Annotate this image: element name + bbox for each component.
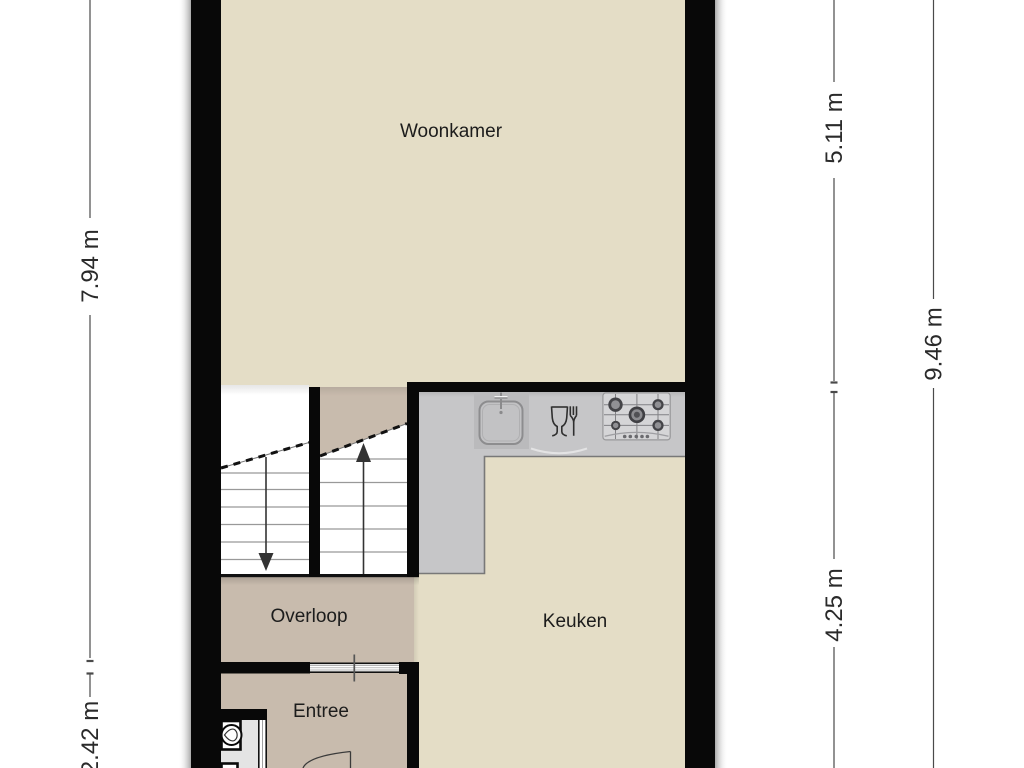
svg-text:9.46 m: 9.46 m [921, 307, 948, 380]
svg-text:2.42 m: 2.42 m [77, 701, 104, 768]
svg-text:Entree: Entree [293, 701, 349, 722]
svg-text:5.11 m: 5.11 m [821, 92, 848, 164]
svg-text:Woonkamer: Woonkamer [400, 121, 503, 142]
svg-text:4.25 m: 4.25 m [821, 568, 848, 641]
svg-text:Keuken: Keuken [543, 611, 607, 632]
svg-text:Overloop: Overloop [270, 606, 347, 627]
svg-text:7.94 m: 7.94 m [77, 229, 104, 302]
